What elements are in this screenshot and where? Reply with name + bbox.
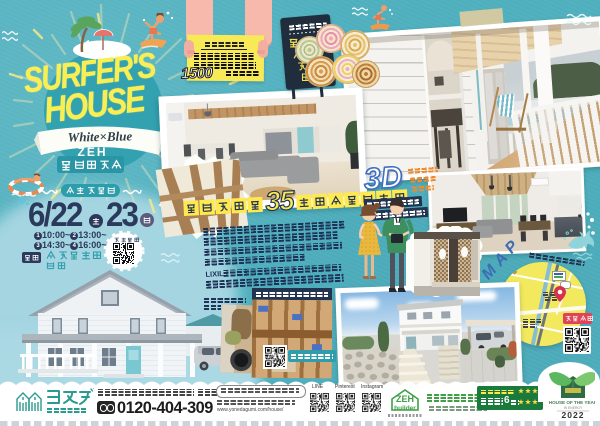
svg-text:HOUSE OF THE YEAR: HOUSE OF THE YEAR: [549, 400, 595, 405]
svg-text:ZEH: ZEH: [396, 394, 414, 404]
svg-text:2022: 2022: [562, 410, 585, 420]
svg-text:builder: builder: [394, 405, 416, 412]
